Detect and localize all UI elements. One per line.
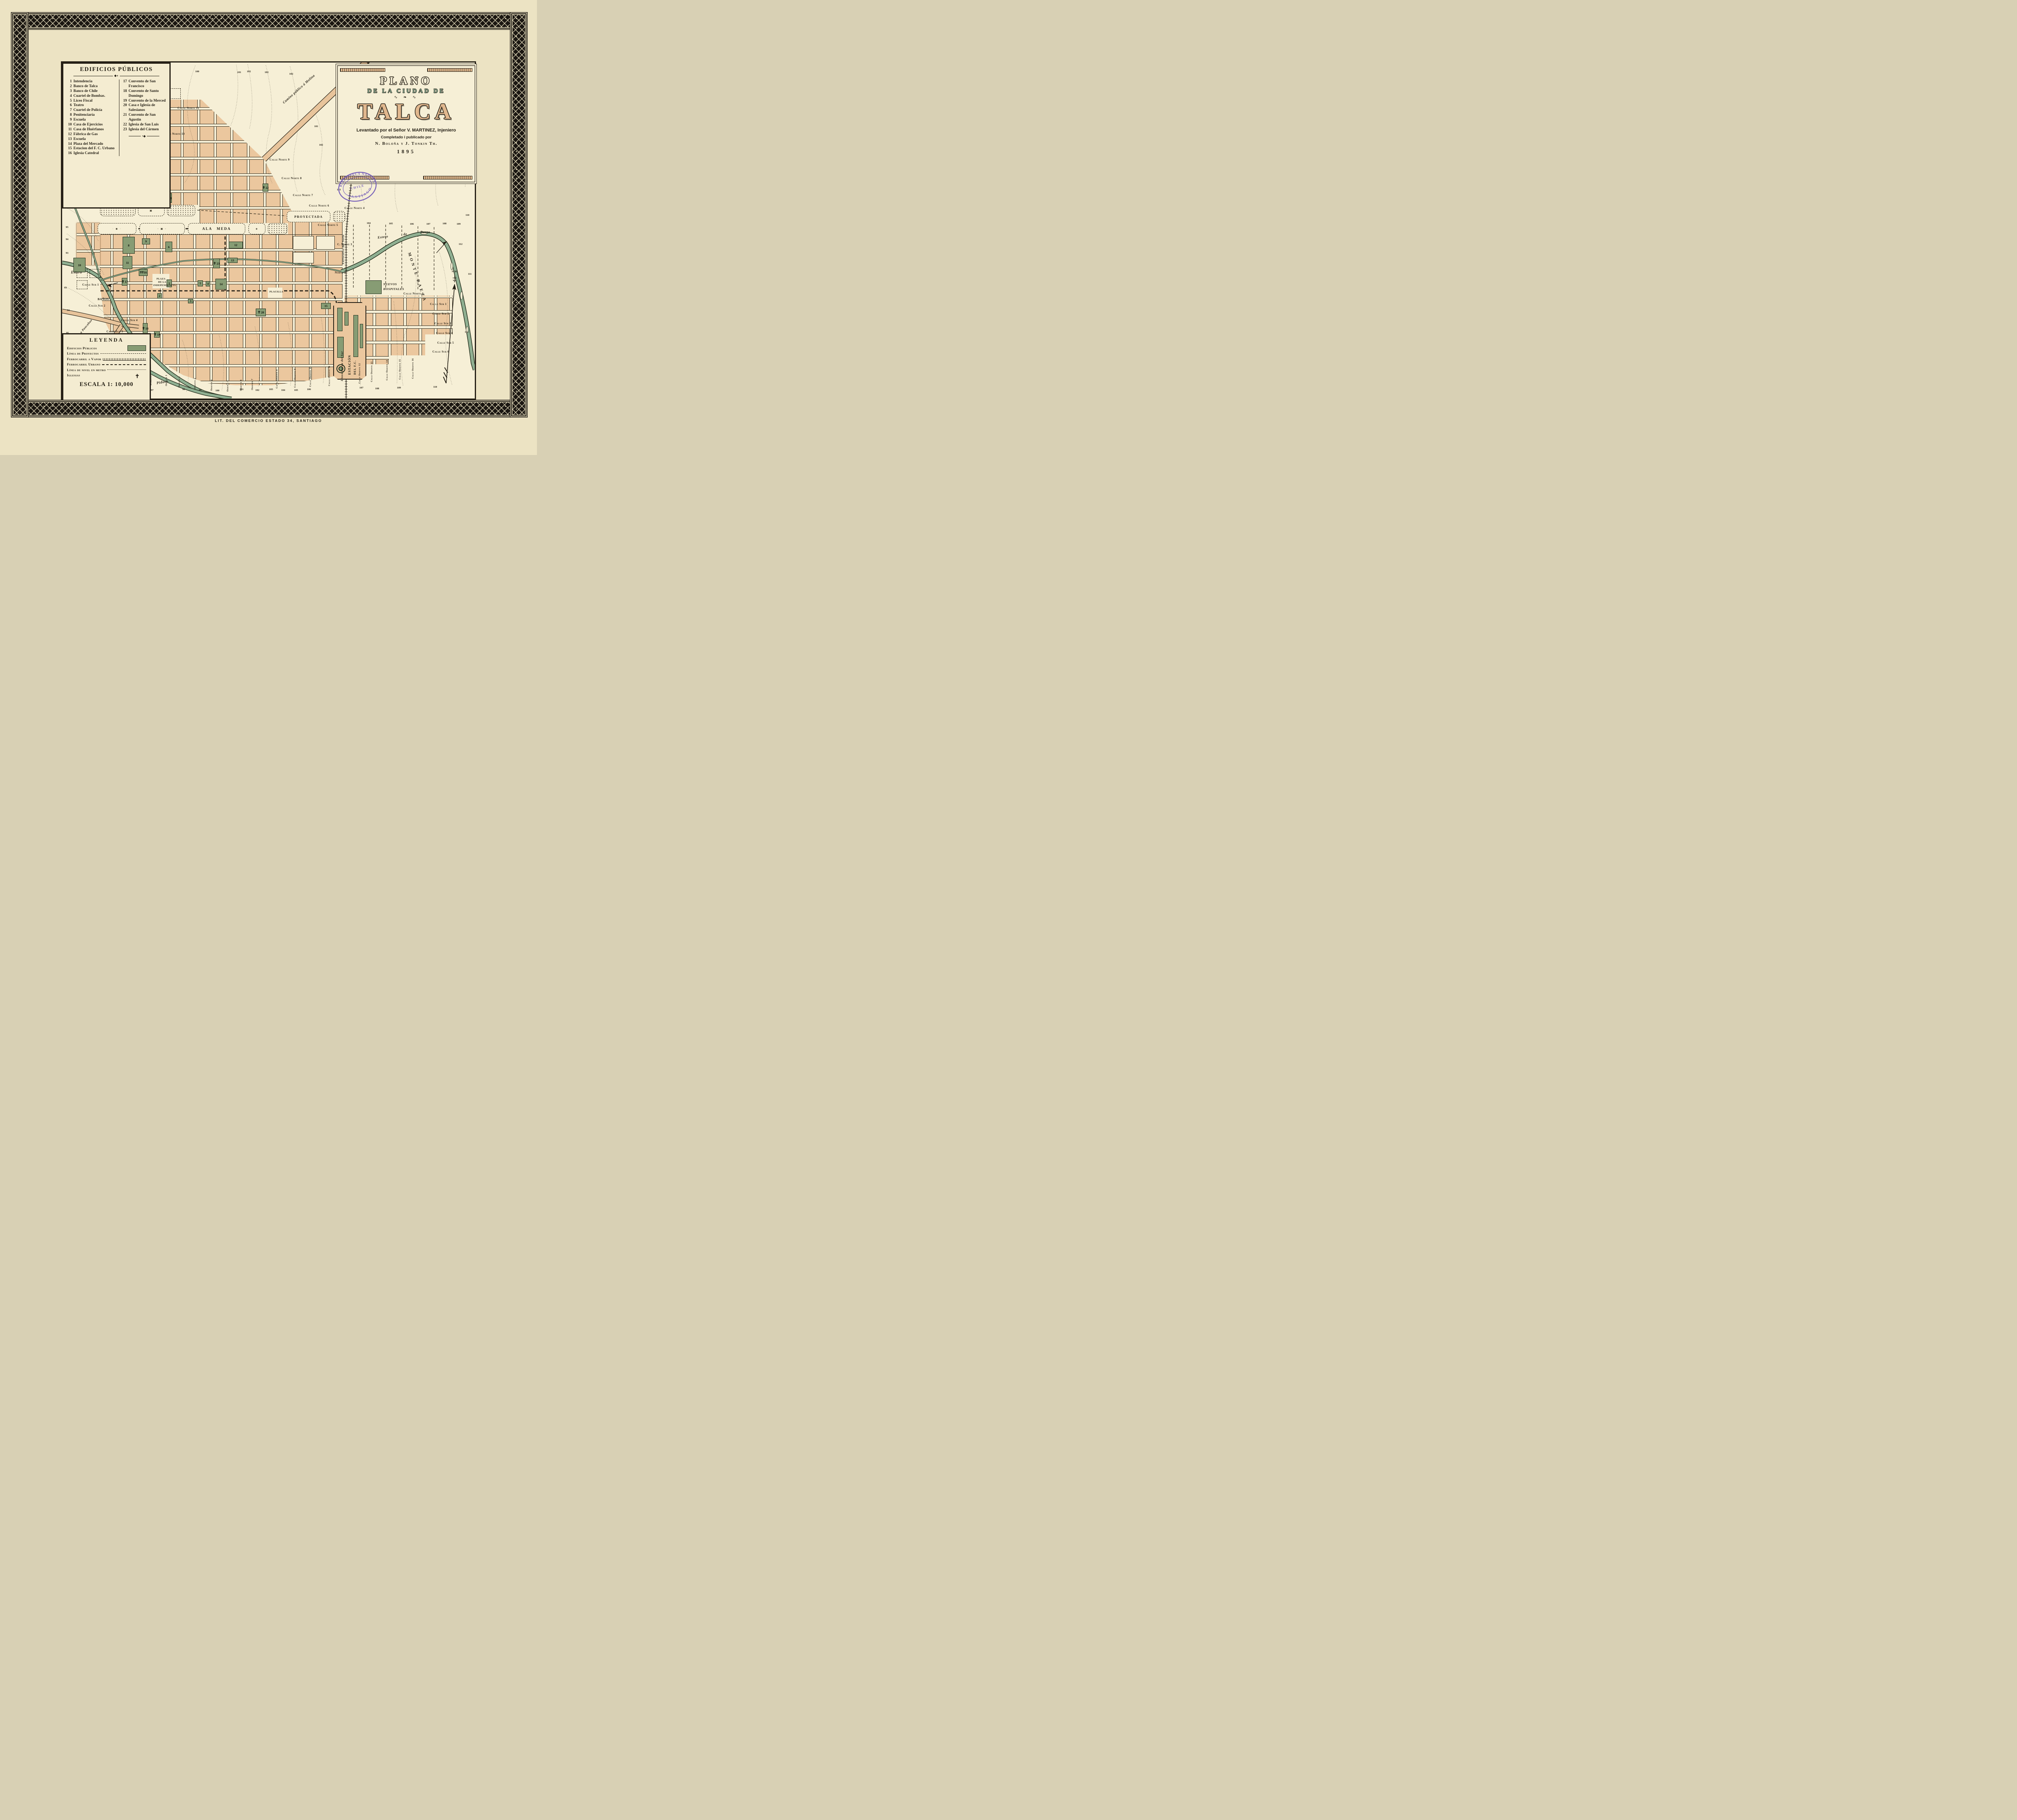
cartouche-ruler-ornament — [427, 68, 472, 72]
station-label-2: DEL F.C. — [353, 360, 357, 375]
alameda-tree-segment — [268, 223, 287, 234]
building-17: 17 — [122, 278, 127, 286]
list-item: 5Liceo Fiscal — [66, 99, 117, 104]
plaza-label-line3: INDEPENDENCIA — [153, 284, 176, 287]
street-label-calle-norte-4: Calle Norte 4 — [345, 207, 365, 210]
elevation-marker: 107 — [359, 387, 363, 390]
credit-surveyor: Levantado por el Señor V. MARTINEZ, Inje… — [336, 128, 476, 133]
item-number: 13 — [66, 137, 73, 142]
building-19: 19 — [154, 331, 160, 338]
list-item: 17Convento de San Francisco — [121, 79, 167, 89]
item-number: 16 — [66, 151, 73, 156]
item-number: 5 — [66, 99, 73, 104]
label-nuevos-hospitales-2: HOSPITALES — [383, 288, 404, 291]
elevation-marker: 100 — [215, 390, 219, 392]
elevation-marker: 111 — [468, 273, 472, 276]
list-item: 18Convento de Santo Domingo — [121, 89, 167, 99]
elevation-marker: 93 — [66, 252, 69, 255]
item-label: Convento de la Merced — [129, 99, 167, 104]
list-item: 16Iglesia Catedral — [66, 151, 117, 156]
item-number: 3 — [66, 89, 73, 94]
alameda-segment: ◦ ▣ ◦ — [140, 223, 185, 234]
street-label-calle-norte-9: Calle Norte 9 — [269, 159, 290, 161]
item-number: 8 — [66, 113, 73, 118]
item-number: 6 — [66, 103, 73, 108]
street-label-norte-2: Norte 2 — [335, 271, 346, 274]
street-label-oriente-1: Oriente 1 — [165, 375, 168, 386]
elevation-marker: 110 — [466, 214, 469, 217]
cartouche-ruler-ornament — [423, 176, 472, 179]
legend-row: Iglesias ✝ — [67, 373, 146, 378]
item-label: Convento de San Francisco — [129, 79, 167, 89]
legend-row: Ferrocarril a Vapor — [67, 357, 146, 362]
river-label-estero-baeza-2: de — [403, 232, 407, 236]
monument-glyph: ▣ — [150, 209, 153, 212]
item-label: Banco de Talca — [73, 84, 117, 89]
ornamental-border-right — [511, 13, 526, 416]
item-label: Convento de San Agustin — [129, 113, 167, 123]
building-12: 12 — [229, 242, 243, 248]
elevation-marker: 103 — [269, 388, 273, 391]
item-label: Penitenciaría — [73, 113, 117, 118]
item-label: Fábrica de Gas — [73, 132, 117, 137]
elevation-marker: 98 — [182, 388, 185, 391]
cartouche-ruler-ornament — [340, 68, 385, 72]
legend-symbol-public-building — [98, 346, 146, 351]
railway-station: ESTACIÓN DEL F.C. DEL ESTADO — [333, 302, 366, 380]
street-label-calle-sur-2-east: Calle Sur 2 — [432, 313, 449, 315]
fountain-glyph: · ◉ · — [113, 227, 121, 230]
fountain-glyph: ◦ ▣ ◦ — [158, 227, 167, 230]
monument-glyph: ◈ — [256, 227, 259, 230]
legend-label: Edificios Públicos — [67, 346, 97, 351]
elevation-marker: 93 — [64, 287, 67, 290]
elevation-marker: 100 — [195, 71, 199, 73]
list-item: 20Casa e Iglesia de Salesianos — [121, 103, 167, 113]
elevation-marker: 104 — [281, 389, 285, 392]
item-number: 15 — [66, 146, 73, 151]
item-label: Liceo Fiscal — [73, 99, 117, 104]
building-13: 13 — [228, 258, 238, 263]
item-label: Escuela — [73, 118, 117, 123]
elevation-marker: 112 — [459, 243, 462, 246]
alameda-tree-segment — [333, 211, 345, 222]
street-label-calle-sur-4-east: Calle Sur 4 — [436, 332, 453, 335]
edificios-column-2: 17Convento de San Francisco 18Convento d… — [119, 79, 167, 156]
elevation-marker: 110 — [433, 386, 437, 389]
credit-publishers: N. Boloña y J. Tonkin Th. — [336, 142, 476, 146]
list-item: 12Fábrica de Gas — [66, 132, 117, 137]
list-item: 13Escuela — [66, 137, 117, 142]
open-block — [293, 236, 314, 250]
item-label: Casa de Ejercicios — [73, 123, 117, 127]
river-label-estero-baeza-3: Baeza — [420, 230, 430, 234]
alameda-segment: ◈ — [248, 223, 265, 234]
edificios-title: EDIFICIOS PÚBLICOS — [66, 66, 167, 73]
elevation-marker: 105 — [294, 389, 298, 392]
list-item: 14Plaza del Mercado — [66, 142, 117, 147]
plaza-label-line2: DE LA — [158, 281, 166, 284]
item-label: Intendencia — [73, 79, 117, 84]
alameda-label: ALA MEDA — [202, 227, 231, 231]
list-item: 3Banco de Chile — [66, 89, 117, 94]
item-number: 23 — [121, 127, 129, 132]
alameda-segment: · ◉ · — [98, 223, 136, 234]
rail-label-ferrocarril-norte: Ferrocarril del Norte — [342, 234, 345, 264]
edificios-publicos-panel: EDIFICIOS PÚBLICOS ◆◗ 1Intendencia 2Banc… — [62, 63, 171, 209]
item-label: Cuartel de Bombas. — [73, 94, 117, 99]
legend-symbol-steam-railway — [103, 357, 146, 361]
item-label: Banco de Chile — [73, 89, 117, 94]
legend-label: Línea de nivel en metro — [67, 367, 106, 373]
item-number: 18 — [121, 89, 129, 99]
alameda-tree-segment — [167, 205, 195, 216]
street-label-calle-sur-4-west: Calle Sur 4 — [121, 319, 138, 322]
item-number: 21 — [121, 113, 129, 123]
ornamental-border-top — [12, 13, 526, 29]
street-label-calle-sur-3-west: Calle Sur 3 — [106, 330, 123, 333]
legend-row: Línea de nivel en metro — [67, 367, 146, 373]
building-14: 14 — [215, 279, 227, 290]
building-2: 2 — [157, 293, 162, 298]
elevation-marker: 102 — [319, 144, 323, 147]
street-label-oriente-4: Oriente 4 — [211, 380, 213, 391]
label-nuevos-hospitales-1: NUEVOS — [383, 283, 397, 286]
building-4: 4 — [206, 281, 210, 286]
item-number: 14 — [66, 142, 73, 147]
list-item: 1Intendencia — [66, 79, 117, 84]
river-label-estero-west: Estero — [71, 271, 82, 274]
item-label: Casa e Iglesia de Salesianos — [129, 103, 167, 113]
legend-symbol-church-cross: ✝ — [81, 374, 146, 378]
item-number: 9 — [66, 118, 73, 123]
elevation-marker: 106 — [307, 388, 311, 391]
street-label-calle-sur-5-east: Calle Sur 5 — [437, 342, 454, 344]
legend-label: Iglesias — [67, 373, 80, 378]
place-label-banos: BAÑOS — [98, 298, 109, 301]
list-item: 19Convento de la Merced — [121, 99, 167, 104]
building-15: 15 — [321, 303, 331, 309]
stamp-middle-text: CHILE — [350, 184, 365, 190]
item-number: 1 — [66, 79, 73, 84]
edificios-column-1: 1Intendencia 2Banco de Talca 3Banco de C… — [66, 79, 119, 156]
street-label-calle-sur-1-east: Calle Sur 1 — [430, 303, 447, 306]
list-item: 6Teatro — [66, 103, 117, 108]
list-item: 22Iglesia de San Luis — [121, 123, 167, 127]
item-label: Iglesia de San Luis — [129, 123, 167, 127]
title-de-la-ciudad: DE LA CIUDAD DE — [336, 88, 476, 95]
elevation-marker: 109 — [397, 387, 401, 390]
elevation-marker: 101 — [237, 71, 241, 74]
elevation-marker: 102 — [247, 71, 251, 73]
title-talca: TALCA — [336, 100, 476, 123]
building-5: 5 — [198, 280, 203, 286]
street-label-calle-oriente-11: Calle Oriente 11 — [328, 366, 331, 386]
item-number: 19 — [121, 99, 129, 104]
open-block — [293, 252, 314, 263]
street-label-calle-norte-11: Calle Norte 11 — [177, 107, 199, 110]
building-16: 16 — [139, 269, 148, 276]
elevation-marker: 112 — [465, 331, 468, 334]
map-sheet-page: ▣ · ◉ · ◦ ▣ ◦ ALA MEDA ◈ PROYECTADA ESTA… — [0, 0, 537, 455]
item-number: 7 — [66, 108, 73, 113]
building-11: 11 — [123, 256, 132, 269]
item-label: Teatro — [73, 103, 117, 108]
street-label-calle-sur-3-east: Calle Sur 3 — [434, 322, 451, 325]
building-23: 23 — [213, 259, 220, 268]
street-label-calle-norte-6: Calle Norte 6 — [309, 205, 329, 207]
rail-label-linea-ferrea-sur: Línea férrea del Sur — [340, 351, 344, 381]
legend-symbol-projected-line — [100, 352, 146, 356]
list-item: 7Cuartel de Policía — [66, 108, 117, 113]
legend-row: Línea de Proyectos — [67, 351, 146, 356]
legend-label: Ferrocarril a Vapor — [67, 357, 101, 362]
elevation-marker: 104 — [367, 222, 371, 225]
street-label-calle-sur-1-west: Calle Sur 1 — [82, 284, 99, 286]
street-label-calle-norte-5: Calle Norte 5 — [318, 224, 338, 227]
street-label-calle-sur-2-west: Calle Sur 2 — [89, 305, 105, 307]
street-label-calle-oriente-16: Calle Oriente 16 — [412, 358, 414, 379]
street-label-oriente-7: Oriente 7 — [251, 379, 254, 390]
label-nm-compass: N.M. — [452, 271, 458, 273]
building-22: 22 — [263, 184, 268, 192]
elevation-marker: 102 — [289, 73, 293, 76]
credit-published: Completado i publicado por — [336, 135, 476, 140]
proyectada-label: PROYECTADA — [294, 215, 323, 219]
elevation-marker: 99 — [199, 389, 202, 392]
street-label-oriente-3: Oriente 3 — [194, 378, 196, 389]
ornamental-border-left — [12, 13, 27, 416]
street-label-calle-oriente-15: Calle Oriente 15 — [399, 359, 401, 380]
item-label: Convento de Santo Domingo — [129, 89, 167, 99]
item-label: Plaza del Mercado — [73, 142, 117, 147]
station-label-1: ESTACIÓN — [348, 355, 351, 375]
proyectada-segment: PROYECTADA — [287, 211, 330, 222]
item-number: 2 — [66, 84, 73, 89]
ornament-divider: ◆◗ — [73, 74, 159, 77]
station-platform — [360, 324, 363, 348]
street-label-calle-sur-6-east: Calle Sur 6 — [432, 351, 449, 353]
elevation-marker: 106 — [410, 223, 414, 226]
open-block — [316, 236, 335, 250]
item-label: Iglesia Catedral — [73, 151, 117, 156]
elevation-marker: 105 — [389, 223, 393, 225]
title-year: 1895 — [336, 148, 476, 155]
list-item: 2Banco de Talca — [66, 84, 117, 89]
list-item: 8Penitenciaría — [66, 113, 117, 118]
list-item: 4Cuartel de Bombas. — [66, 94, 117, 99]
elevation-marker: 102 — [255, 389, 259, 392]
divider-diamond-icon: •◆ — [141, 135, 147, 138]
building-20: 20 — [256, 309, 266, 316]
ornamental-border-bottom — [12, 401, 526, 416]
item-number: 17 — [121, 79, 129, 89]
item-number: 20 — [121, 103, 129, 113]
projected-block — [90, 269, 100, 278]
building-3: 3 — [188, 299, 193, 303]
item-label: Escuela — [73, 137, 117, 142]
elevation-marker: 94 — [67, 309, 70, 312]
elevation-marker: 101 — [240, 388, 244, 391]
plaza-label-line1: PLAZA — [157, 278, 165, 280]
street-label-calle-oriente-8: Calle Oriente 8 — [276, 369, 278, 388]
item-label: Cuartel de Policía — [73, 108, 117, 113]
alameda-label-segment: ALA MEDA — [188, 223, 245, 234]
item-number: 11 — [66, 127, 73, 132]
item-label: Iglesia del Cármen — [129, 127, 167, 132]
list-item: 23Iglesia del Cármen — [121, 127, 167, 132]
legend-symbol-contour-line — [107, 368, 146, 372]
elevation-marker: 94 — [66, 238, 69, 241]
list-item: 9Escuela — [66, 118, 117, 123]
building-6: 6 — [165, 242, 172, 252]
item-label: Estacion del F. C. Urbano — [73, 146, 117, 151]
elevation-marker: 97 — [151, 389, 154, 392]
legend-symbol-urban-railway — [102, 363, 146, 367]
leyenda-panel: LEYENDA Edificios Públicos Línea de Proy… — [62, 333, 151, 404]
street-label-calle-oriente-9: Calle Oriente 9 — [294, 369, 296, 388]
elevation-marker: 102 — [265, 71, 269, 74]
building-8: 8 — [123, 237, 135, 254]
list-item: 10Casa de Ejercicios — [66, 123, 117, 127]
nuevos-hospitales-building — [365, 280, 382, 294]
street-label-calle-oriente-14: Calle Oriente 14 — [386, 360, 388, 380]
item-number: 4 — [66, 94, 73, 99]
list-item: 11Casa de Huérfanos — [66, 127, 117, 132]
street-label-oriente-2: Oriente 2 — [178, 376, 181, 388]
title-plano: PLANO — [336, 75, 476, 87]
list-item: 15Estacion del F. C. Urbano — [66, 146, 117, 151]
item-label: Casa de Huérfanos — [73, 127, 117, 132]
station-building — [337, 308, 342, 331]
building-9: 9 — [142, 238, 150, 244]
street-label-calle-oriente-12: Calle Oriente 12 — [359, 363, 361, 384]
ornament-divider: •◆ — [129, 135, 159, 138]
elevation-marker: 108 — [375, 388, 379, 390]
street-label-calle-norte-7: Calle Norte 7 — [293, 194, 313, 197]
item-number: 22 — [121, 123, 129, 127]
elevation-marker: 107 — [426, 223, 430, 226]
street-label-calle-oriente-13: Calle Oriente 13 — [371, 361, 373, 382]
lithographer-caption: LIT. DEL COMERCIO ESTADO 34, SANTIAGO — [0, 419, 537, 423]
building-18: 18 — [143, 323, 148, 334]
title-cartouche: PLANO DE LA CIUDAD DE ∿ ❧ ∿ TALCA Levant… — [336, 64, 477, 184]
legend-row: Ferrocarril Urbano — [67, 362, 146, 367]
street-label-calle-oriente-10: Calle Oriente 10 — [309, 366, 312, 387]
elevation-marker: 95 — [66, 226, 69, 229]
elevation-marker: 108 — [443, 223, 447, 225]
item-number: 12 — [66, 132, 73, 137]
street-label-oriente-5: Oriente 5 — [227, 380, 229, 392]
divider-diamond-icon: ◆◗ — [113, 74, 120, 77]
item-number: 10 — [66, 123, 73, 127]
elevation-marker: 109 — [457, 223, 461, 226]
legend-label: Ferrocarril Urbano — [67, 362, 100, 367]
legend-row: Edificios Públicos — [67, 346, 146, 351]
leyenda-title: LEYENDA — [67, 337, 146, 343]
street-label-calle-norte-8: Calle Norte 8 — [282, 177, 302, 180]
list-item: 21Convento de San Agustin — [121, 113, 167, 123]
station-building — [345, 312, 349, 326]
map-scale: ESCALA 1: 10,000 — [67, 381, 146, 388]
place-label-placilla: PLACILLA — [269, 291, 283, 293]
legend-label: Línea de Proyectos — [67, 351, 99, 356]
station-platform — [353, 315, 358, 357]
elevation-marker: 101 — [314, 125, 318, 128]
